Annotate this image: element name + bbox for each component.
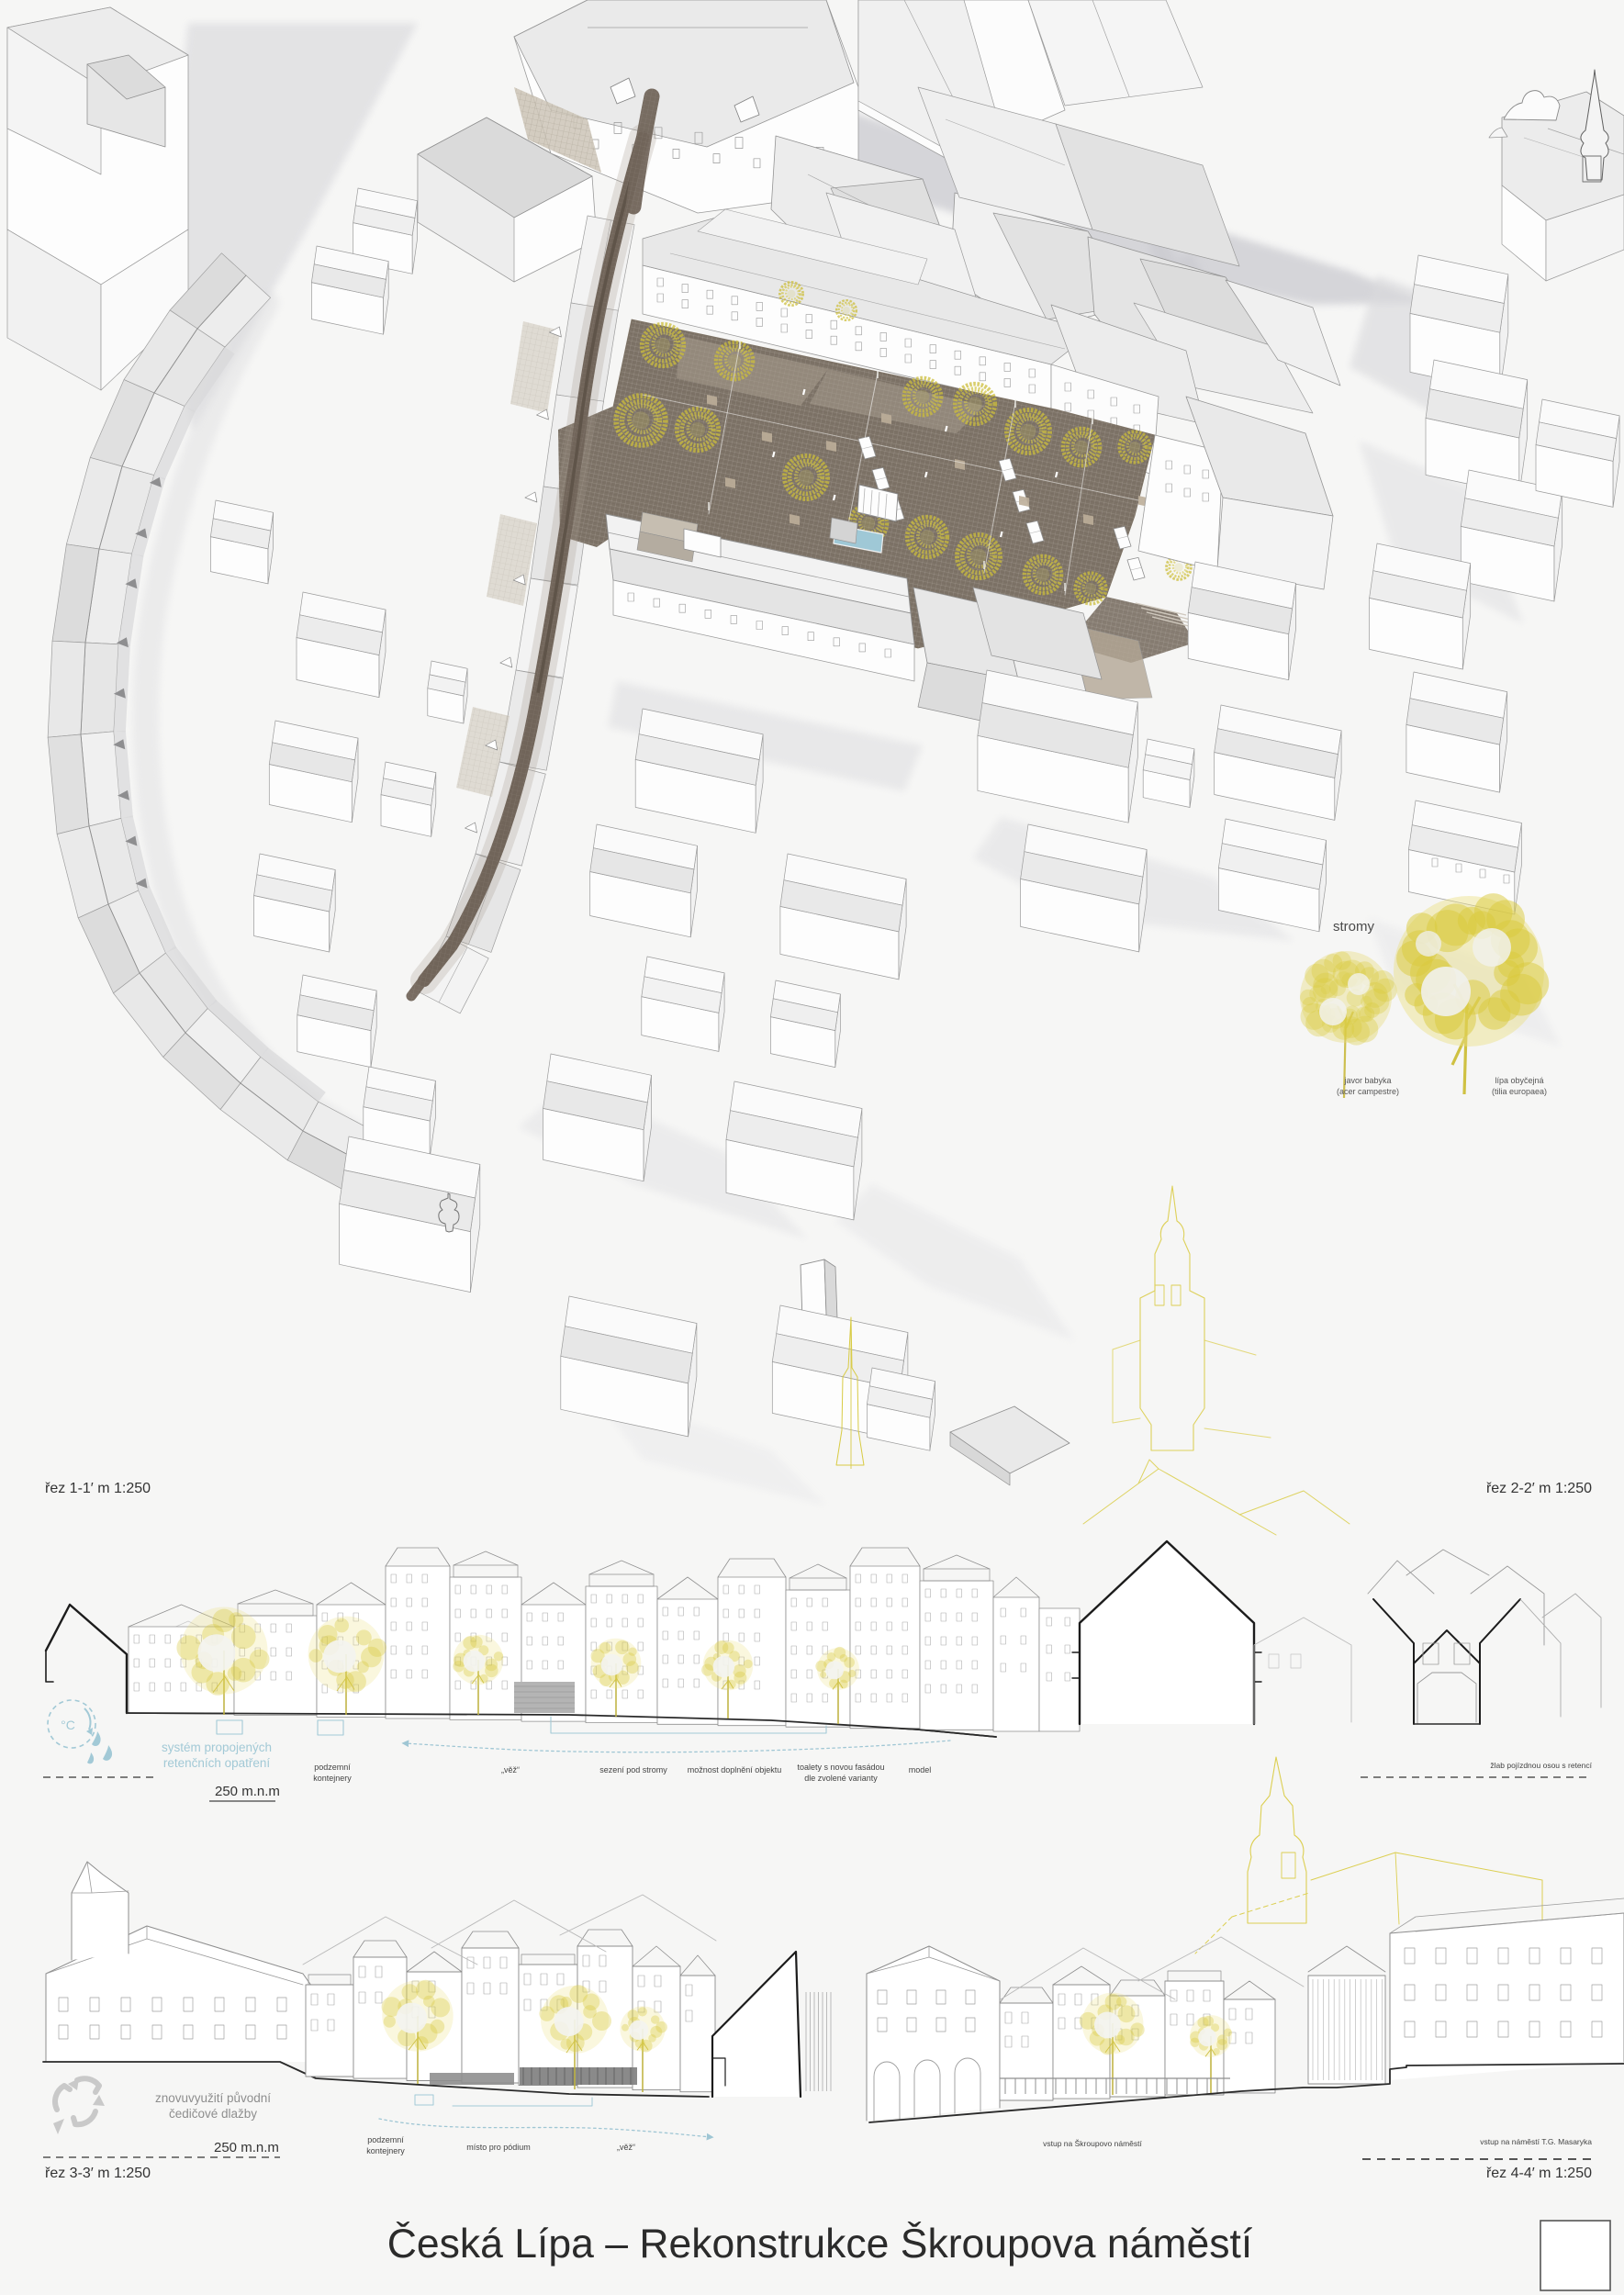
svg-text:možnost doplnění objektu: možnost doplnění objektu: [688, 1765, 782, 1774]
svg-text:znovuvyužití původní: znovuvyužití původní: [155, 2091, 271, 2105]
svg-text:podzemní: podzemní: [367, 2135, 404, 2144]
svg-text:podzemní: podzemní: [314, 1763, 351, 1772]
svg-text:250 m.n.m: 250 m.n.m: [214, 2140, 279, 2155]
svg-text:kontejnery: kontejnery: [313, 1774, 352, 1783]
svg-text:javor babyka: javor babyka: [1343, 1076, 1391, 1085]
svg-text:řez 3-3′ m 1:250: řez 3-3′ m 1:250: [45, 2166, 151, 2181]
svg-text:čedičové dlažby: čedičové dlažby: [169, 2107, 257, 2121]
svg-text:toalety s novou fasádou: toalety s novou fasádou: [797, 1763, 884, 1772]
svg-text:žlab pojízdnou osou s retencí: žlab pojízdnou osou s retencí: [1490, 1761, 1592, 1770]
svg-text:řez 4-4′ m 1:250: řez 4-4′ m 1:250: [1486, 2166, 1592, 2181]
svg-text:stromy: stromy: [1333, 919, 1375, 935]
svg-text:retenčních opatření: retenčních opatření: [163, 1756, 271, 1770]
svg-text:„věž“: „věž“: [617, 2143, 635, 2152]
svg-text:vstup na náměstí T.G. Masaryka: vstup na náměstí T.G. Masaryka: [1480, 2137, 1592, 2146]
svg-text:sezení pod stromy: sezení pod stromy: [599, 1765, 667, 1774]
svg-text:„věž“: „věž“: [501, 1765, 520, 1774]
svg-text:(tilia europaea): (tilia europaea): [1492, 1087, 1547, 1096]
svg-text:Česká Lípa – Rekonstrukce Škro: Česká Lípa – Rekonstrukce Škroupova námě…: [387, 2221, 1253, 2267]
svg-text:kontejnery: kontejnery: [366, 2146, 405, 2155]
svg-text:místo pro pódium: místo pro pódium: [466, 2143, 531, 2152]
svg-text:řez 2-2′ m 1:250: řez 2-2′ m 1:250: [1486, 1481, 1592, 1496]
svg-text:model: model: [909, 1765, 932, 1774]
svg-text:dle zvolené varianty: dle zvolené varianty: [804, 1774, 878, 1783]
svg-text:°C: °C: [61, 1718, 75, 1732]
svg-text:řez 1-1′ m 1:250: řez 1-1′ m 1:250: [45, 1481, 151, 1496]
svg-text:(acer campestre): (acer campestre): [1337, 1087, 1399, 1096]
svg-text:systém propojených: systém propojených: [162, 1741, 272, 1754]
svg-text:lípa obyčejná: lípa obyčejná: [1495, 1076, 1543, 1085]
svg-text:250 m.n.m: 250 m.n.m: [215, 1784, 280, 1799]
svg-text:vstup na Škroupovo náměstí: vstup na Škroupovo náměstí: [1043, 2139, 1142, 2148]
